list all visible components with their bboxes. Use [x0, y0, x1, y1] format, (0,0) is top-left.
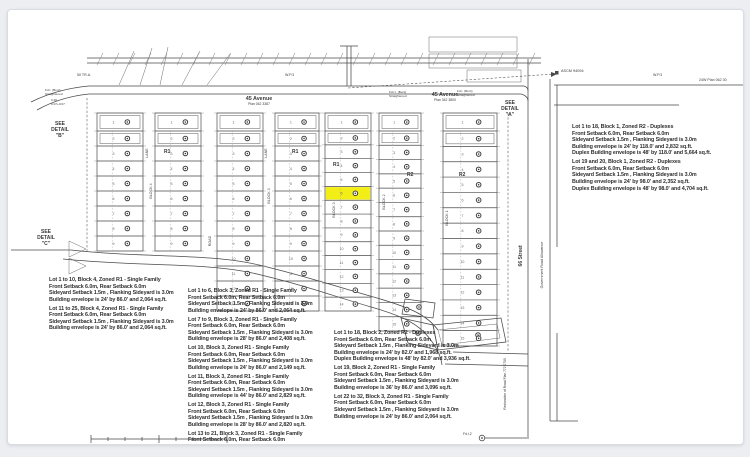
lot-monument-dot-icon — [303, 258, 305, 260]
zone-label-r2: R2 — [407, 172, 414, 178]
zoning-notes-block3: Lot 1 to 6, Block 3, Zoned R1 - Single F… — [188, 288, 322, 445]
note-paragraph: Lot 19 and 20, Block 1, Zoned R2 - Duple… — [572, 159, 742, 192]
lot-number: 4 — [113, 167, 115, 171]
lot-monument-dot-icon — [185, 138, 187, 140]
lot-number: 5 — [233, 182, 235, 186]
lot-number: 8 — [233, 227, 235, 231]
lot-number: 6 — [113, 197, 115, 201]
lot-number: 1 — [171, 120, 173, 124]
note-paragraph: Lot 19, Block 2, Zoned R1 - Single Famil… — [334, 365, 486, 391]
lot-monument-dot-icon — [247, 168, 249, 170]
lot-number: 5 — [113, 182, 115, 186]
lot-monument-dot-icon — [247, 243, 249, 245]
lot-monument-dot-icon — [406, 252, 408, 254]
lot-number: 6 — [171, 197, 173, 201]
lot-monument-dot-icon — [127, 228, 129, 230]
lot-monument-dot-icon — [355, 151, 357, 153]
lot-monument-dot-icon — [355, 206, 357, 208]
building-envelope-outline — [100, 134, 140, 144]
lot-strip-block2: 123456789101112131415 — [376, 113, 424, 331]
lot-monument-dot-icon — [185, 198, 187, 200]
lot-number: 9 — [290, 242, 292, 246]
lot-number: 9 — [393, 237, 395, 241]
plan-number-top-right: 24W Plan 062 30 — [699, 78, 727, 82]
lot-strip-grid — [217, 113, 263, 311]
lot-number: 1 — [113, 120, 115, 124]
gov-road-allowance-label: Government Road Allowance — [540, 217, 544, 313]
lot-strip-block4-west: 123456789 — [94, 113, 146, 251]
lot-number: 4 — [290, 167, 292, 171]
lot-monument-dot-icon — [127, 153, 129, 155]
lot-number: 5 — [461, 183, 463, 187]
lot-monument-dot-icon — [478, 276, 480, 278]
lot-monument-dot-icon — [478, 121, 480, 123]
lot-number: 12 — [460, 291, 464, 295]
lot-strip-grid — [275, 113, 319, 311]
found-iron-note-2: Fd.I.I. (Bent) Straightened — [389, 91, 407, 98]
road-restoration-label: Restoration of Road Plan 772 2759 — [504, 355, 508, 413]
street-66-label: 66 Street — [519, 231, 525, 281]
lot-monument-dot-icon — [185, 228, 187, 230]
lot-number: 1 — [233, 120, 235, 124]
lot-monument-dot-icon — [406, 194, 408, 196]
lot-monument-dot-icon — [303, 228, 305, 230]
lot-monument-dot-icon — [355, 165, 357, 167]
lot-monument-dot-icon — [406, 266, 408, 268]
avenue-45-plan-east: Plan 342 3800 — [421, 99, 469, 103]
found-iron-note-bottom: Fd.I.2 — [463, 433, 472, 437]
lot-monument-dot-icon — [247, 138, 249, 140]
lot-monument-dot-icon — [478, 307, 480, 309]
lot-monument-dot-icon — [406, 166, 408, 168]
lot-monument-dot-icon — [478, 215, 480, 217]
survey-tie-line — [348, 71, 559, 88]
lot-monument-dot-icon — [247, 258, 249, 260]
lot-monument-dot-icon — [247, 153, 249, 155]
building-envelope-outline — [328, 134, 368, 143]
lot-monument-dot-icon — [478, 153, 480, 155]
note-paragraph: Lot 1 to 18, Block 2, Zoned R2 - Duplexe… — [334, 330, 486, 363]
lot-number: 9 — [233, 242, 235, 246]
lot-monument-dot-icon — [406, 121, 408, 123]
zone-label-r2: R2 — [459, 172, 466, 178]
lot-monument-dot-icon — [406, 152, 408, 154]
note-paragraph: Lot 12, Block 3, Zoned R1 - Single Famil… — [188, 402, 322, 428]
lot-monument-dot-icon — [355, 248, 357, 250]
lot-number: 7 — [393, 208, 395, 212]
lot-monument-dot-icon — [247, 213, 249, 215]
lot-monument-dot-icon — [478, 245, 480, 247]
lot-strip-block3-col3: 1234567891011121314 — [322, 113, 374, 311]
lot-monument-dot-icon — [355, 262, 357, 264]
plat-drawing-area: 1234567891234567891234567891011121312345… — [7, 9, 744, 445]
lot-number: 3 — [171, 152, 173, 156]
lot-monument-dot-icon — [355, 137, 357, 139]
lot-number: 5 — [171, 182, 173, 186]
lot-number: 1 — [393, 120, 395, 124]
lot-number: 13 — [460, 306, 464, 310]
see-detail-a-callout: SEE DETAIL "A" — [491, 101, 529, 118]
lot-monument-dot-icon — [127, 168, 129, 170]
note-paragraph: Lot 1 to 10, Block 4, Zoned R1 - Single … — [49, 277, 195, 303]
building-envelope-outline — [382, 134, 418, 143]
lot-monument-dot-icon — [185, 183, 187, 185]
see-detail-c-callout: SEE DETAIL "C" — [27, 230, 65, 247]
lot-monument-dot-icon — [478, 184, 480, 186]
lot-number: 7 — [341, 206, 343, 210]
bottom-monument — [479, 435, 527, 441]
lot-monument-dot-icon — [406, 309, 408, 311]
zone-label-r1: R1 — [292, 149, 299, 155]
lot-number: 2 — [233, 137, 235, 141]
lot-monument-dot-icon — [247, 273, 249, 275]
found-iron-offset-note: 0.30 0.07+0.07 — [51, 99, 65, 106]
lot-number: 7 — [290, 212, 292, 216]
lot-number: 7 — [233, 212, 235, 216]
ascm-monument-label: ASCM 94094 — [561, 69, 584, 73]
lot-monument-dot-icon — [406, 223, 408, 225]
lot-monument-dot-icon — [303, 121, 305, 123]
lot-monument-dot-icon — [355, 121, 357, 123]
lot-number: 6 — [290, 197, 292, 201]
vertical-label-lane: LANE — [145, 148, 149, 158]
lot-number: 5 — [341, 178, 343, 182]
lot-monument-dot-icon — [127, 198, 129, 200]
lot-monument-dot-icon — [478, 322, 480, 324]
lot-monument-dot-icon — [355, 193, 357, 195]
wp3-label-west: W.P.3 — [285, 73, 294, 77]
lot-monument-dot-icon — [247, 198, 249, 200]
lot-number: 6 — [393, 194, 395, 198]
lot-monument-dot-icon — [127, 183, 129, 185]
lot-number: 10 — [460, 260, 464, 264]
lot-strip-grid — [443, 113, 497, 346]
lot-monument-dot-icon — [478, 138, 480, 140]
lot-monument-dot-icon — [406, 209, 408, 211]
lot-number: 4 — [233, 167, 235, 171]
lot-monument-dot-icon — [127, 243, 129, 245]
found-iron-note-3: Fd.I. (Bent) Straightened — [457, 90, 475, 97]
street-66-lines — [528, 59, 744, 439]
lot-number: 2 — [290, 137, 292, 141]
lot-number: 2 — [171, 137, 173, 141]
zone-label-r1: R1 — [164, 149, 171, 155]
lot-monument-dot-icon — [303, 273, 305, 275]
lot-number: 9 — [341, 233, 343, 237]
lot-monument-dot-icon — [185, 168, 187, 170]
lot-monument-dot-icon — [303, 168, 305, 170]
lot-number: 8 — [341, 219, 343, 223]
ascm-monument-icon — [555, 71, 559, 75]
lot-number: 8 — [290, 227, 292, 231]
note-paragraph: Lot 13 to 21, Block 3, Zoned R1 - Single… — [188, 431, 322, 445]
lot-number: 2 — [461, 137, 463, 141]
lot-number: 2 — [341, 136, 343, 140]
building-envelope-outline — [382, 116, 418, 129]
lot-monument-dot-icon — [406, 180, 408, 182]
vertical-label-block-2: BLOCK 2 — [382, 194, 386, 209]
lot-monument-dot-icon — [303, 198, 305, 200]
lot-monument-dot-icon — [127, 213, 129, 215]
note-paragraph: Lot 22 to 32, Block 3, Zoned R1 - Single… — [334, 394, 486, 420]
lot-monument-dot-icon — [127, 121, 129, 123]
lot-strip-block3-col2: 12345678910111213 — [272, 113, 322, 311]
lot-monument-dot-icon — [303, 213, 305, 215]
note-paragraph: Lot 1 to 6, Block 3, Zoned R1 - Single F… — [188, 288, 322, 314]
wp3-label-east: W.P.3 — [653, 73, 662, 77]
lot-number: 5 — [290, 182, 292, 186]
lot-monument-dot-icon — [406, 137, 408, 139]
building-envelope-outline — [278, 116, 316, 129]
lot-monument-dot-icon — [406, 323, 408, 325]
lot-monument-dot-icon — [303, 153, 305, 155]
note-paragraph: Lot 11 to 25, Block 4, Zoned R1 - Single… — [49, 306, 195, 332]
lot-monument-dot-icon — [247, 121, 249, 123]
lot-monument-dot-icon — [355, 179, 357, 181]
building-envelope-outline — [278, 134, 316, 144]
lot-number: 2 — [113, 137, 115, 141]
lot-number: 7 — [461, 214, 463, 218]
lot-strip-block4-east: 123456789 — [152, 113, 204, 251]
plat-sheet: 1234567891234567891234567891011121312345… — [7, 9, 744, 445]
lot-monument-dot-icon — [355, 220, 357, 222]
lot-number: 4 — [341, 164, 343, 168]
lot-number: 3 — [341, 150, 343, 154]
lot-number: 1 — [461, 120, 463, 124]
lot-number: 3 — [461, 152, 463, 156]
vertical-label-block-4: BLOCK 4 — [149, 183, 153, 198]
lot-monument-dot-icon — [185, 213, 187, 215]
lot-number: 7 — [113, 212, 115, 216]
lot-monument-dot-icon — [478, 291, 480, 293]
lot-number: 4 — [171, 167, 173, 171]
plat-scan-page: 1234567891234567891234567891011121312345… — [0, 0, 750, 457]
lot-number: 2 — [393, 137, 395, 141]
highlighted-lot[interactable] — [326, 187, 370, 199]
lot-strip-block3-col1: 12345678910111213 — [214, 113, 266, 311]
building-envelope-outline — [446, 134, 494, 144]
zone-label-r1: R1 — [333, 162, 340, 168]
lot-monument-dot-icon — [303, 243, 305, 245]
north-boundary-lines — [87, 37, 541, 86]
lot-number: 1 — [341, 120, 343, 124]
lot-number: 9 — [461, 245, 463, 249]
lot-monument-dot-icon — [406, 294, 408, 296]
vertical-label-road: ROAD — [208, 235, 212, 246]
lot-monument-dot-icon — [406, 280, 408, 282]
lot-number: 11 — [461, 275, 465, 279]
zoning-notes-block2: Lot 1 to 18, Block 2, Zoned R2 - Duplexe… — [334, 330, 486, 422]
lot-monument-dot-icon — [247, 183, 249, 185]
vertical-label-block-3: BLOCK 3 — [267, 188, 271, 203]
lot-monument-dot-icon — [127, 138, 129, 140]
note-paragraph: Lot 7 to 9, Block 3, Zoned R1 - Single F… — [188, 317, 322, 343]
lot-monument-dot-icon — [478, 169, 480, 171]
note-paragraph: Lot 1 to 18, Block 1, Zoned R2 - Duplexe… — [572, 124, 742, 157]
lot-monument-dot-icon — [355, 234, 357, 236]
building-envelope-outline — [100, 116, 140, 129]
lot-number: 14 — [460, 321, 464, 325]
lot-monument-dot-icon — [478, 199, 480, 201]
vertical-label-block-3: BLOCK 3 — [332, 202, 336, 217]
vertical-label-lane: LANE — [264, 148, 268, 158]
lot-number: 3 — [233, 152, 235, 156]
lot-number: 9 — [113, 242, 115, 246]
lot-monument-dot-icon — [247, 228, 249, 230]
avenue-45-plan-west: Plan 042 3387 — [233, 103, 285, 107]
lot-number: 6 — [461, 199, 463, 203]
lot-monument-dot-icon — [478, 230, 480, 232]
lot-number: 6 — [233, 197, 235, 201]
building-envelope-outline — [328, 116, 368, 129]
lot-number: 8 — [171, 227, 173, 231]
trail-label: 50 TR.A. — [77, 73, 91, 77]
lot-number: 9 — [171, 242, 173, 246]
lot-number: 6 — [341, 192, 343, 196]
vertical-label-block-1: BLOCK 1 — [445, 210, 449, 225]
see-detail-b-callout: SEE DETAIL "B" — [41, 122, 79, 139]
lot-strip-grid — [379, 113, 421, 331]
found-iron-note-1: Fd.I. (Bent) Straightened — [45, 89, 63, 96]
lot-monument-dot-icon — [185, 243, 187, 245]
building-envelope-outline — [220, 116, 260, 129]
lot-number: 7 — [171, 212, 173, 216]
lot-number: 5 — [393, 179, 395, 183]
lot-monument-dot-icon — [185, 121, 187, 123]
lot-monument-dot-icon — [303, 138, 305, 140]
lot-number: 4 — [393, 165, 395, 169]
lot-strip-block1: 123456789101112131415 — [440, 113, 500, 346]
zoning-notes-block1: Lot 1 to 18, Block 1, Zoned R2 - Duplexe… — [572, 124, 742, 194]
lot-number: 8 — [113, 227, 115, 231]
lot-monument-dot-icon — [355, 289, 357, 291]
lot-number: 8 — [461, 229, 463, 233]
lot-number: 8 — [393, 222, 395, 226]
note-paragraph: Lot 10, Block 3, Zoned R1 - Single Famil… — [188, 345, 322, 371]
lot-monument-dot-icon — [303, 183, 305, 185]
building-envelope-outline — [220, 134, 260, 144]
lot-monument-dot-icon — [355, 276, 357, 278]
lot-number: 1 — [290, 120, 292, 124]
lot-monument-dot-icon — [185, 153, 187, 155]
lot-monument-dot-icon — [355, 303, 357, 305]
note-paragraph: Lot 11, Block 3, Zoned R1 - Single Famil… — [188, 374, 322, 400]
lot-monument-dot-icon — [406, 237, 408, 239]
lot-number: 3 — [393, 151, 395, 155]
building-envelope-outline — [158, 134, 198, 144]
building-envelope-outline — [158, 116, 198, 129]
lot-monument-dot-icon — [478, 261, 480, 263]
building-envelope-outline — [446, 116, 494, 129]
lot-number: 3 — [113, 152, 115, 156]
zoning-notes-block4: Lot 1 to 10, Block 4, Zoned R1 - Single … — [49, 277, 195, 334]
